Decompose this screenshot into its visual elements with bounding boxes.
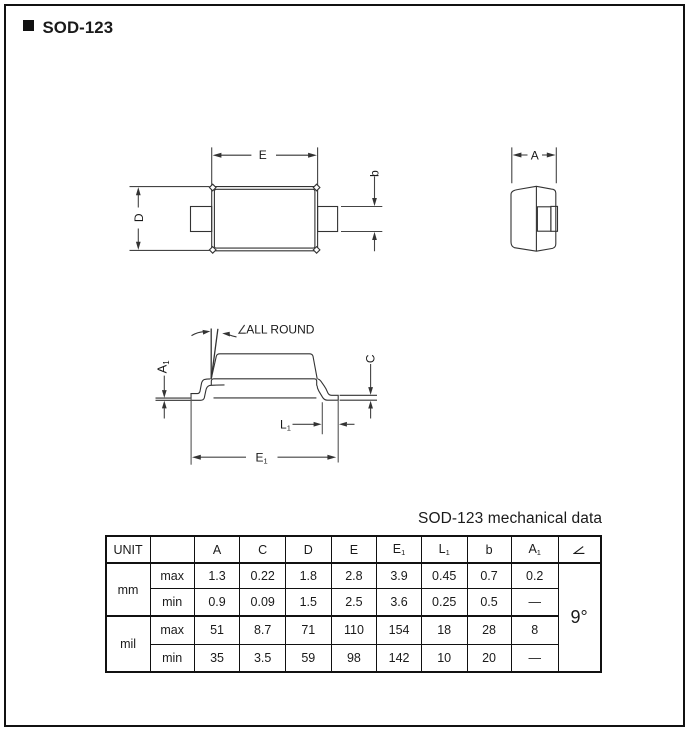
svg-text:b: b: [367, 170, 381, 177]
svg-text:A1: A1: [154, 360, 171, 374]
svg-text:ALL ROUND: ALL ROUND: [246, 322, 315, 336]
svg-text:D: D: [132, 213, 146, 222]
svg-text:E: E: [259, 148, 267, 162]
svg-text:A: A: [531, 148, 539, 162]
svg-text:E1: E1: [256, 450, 268, 465]
svg-text:C: C: [363, 354, 377, 363]
svg-text:L1: L1: [280, 417, 291, 432]
